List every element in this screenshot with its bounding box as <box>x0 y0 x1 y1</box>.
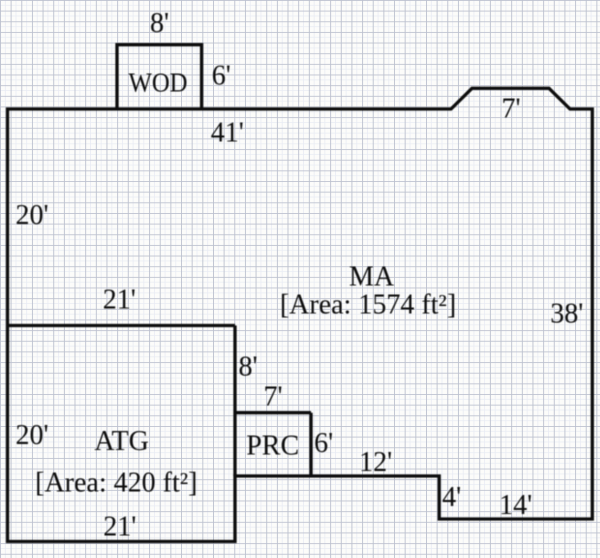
svg-text:ATG: ATG <box>94 426 148 457</box>
svg-text:PRC: PRC <box>246 431 299 462</box>
svg-text:6': 6' <box>314 428 333 459</box>
svg-text:MA: MA <box>349 262 395 293</box>
svg-text:6': 6' <box>212 60 231 91</box>
svg-text:20': 20' <box>15 200 48 231</box>
svg-text:7': 7' <box>501 94 520 125</box>
svg-text:21': 21' <box>103 284 136 315</box>
svg-text:WOD: WOD <box>129 68 188 98</box>
svg-text:20': 20' <box>15 420 48 451</box>
svg-text:14': 14' <box>499 490 532 521</box>
svg-text:8': 8' <box>150 8 169 39</box>
svg-text:41': 41' <box>211 118 244 149</box>
svg-text:4': 4' <box>442 482 461 513</box>
svg-text:21': 21' <box>103 512 136 543</box>
svg-text:[Area: 1574 ft²]: [Area: 1574 ft²] <box>280 290 456 321</box>
svg-text:7': 7' <box>263 382 282 413</box>
svg-text:12': 12' <box>359 447 392 478</box>
svg-text:8': 8' <box>238 352 257 383</box>
svg-text:[Area: 420 ft²]: [Area: 420 ft²] <box>35 468 197 499</box>
svg-text:38': 38' <box>550 298 583 329</box>
